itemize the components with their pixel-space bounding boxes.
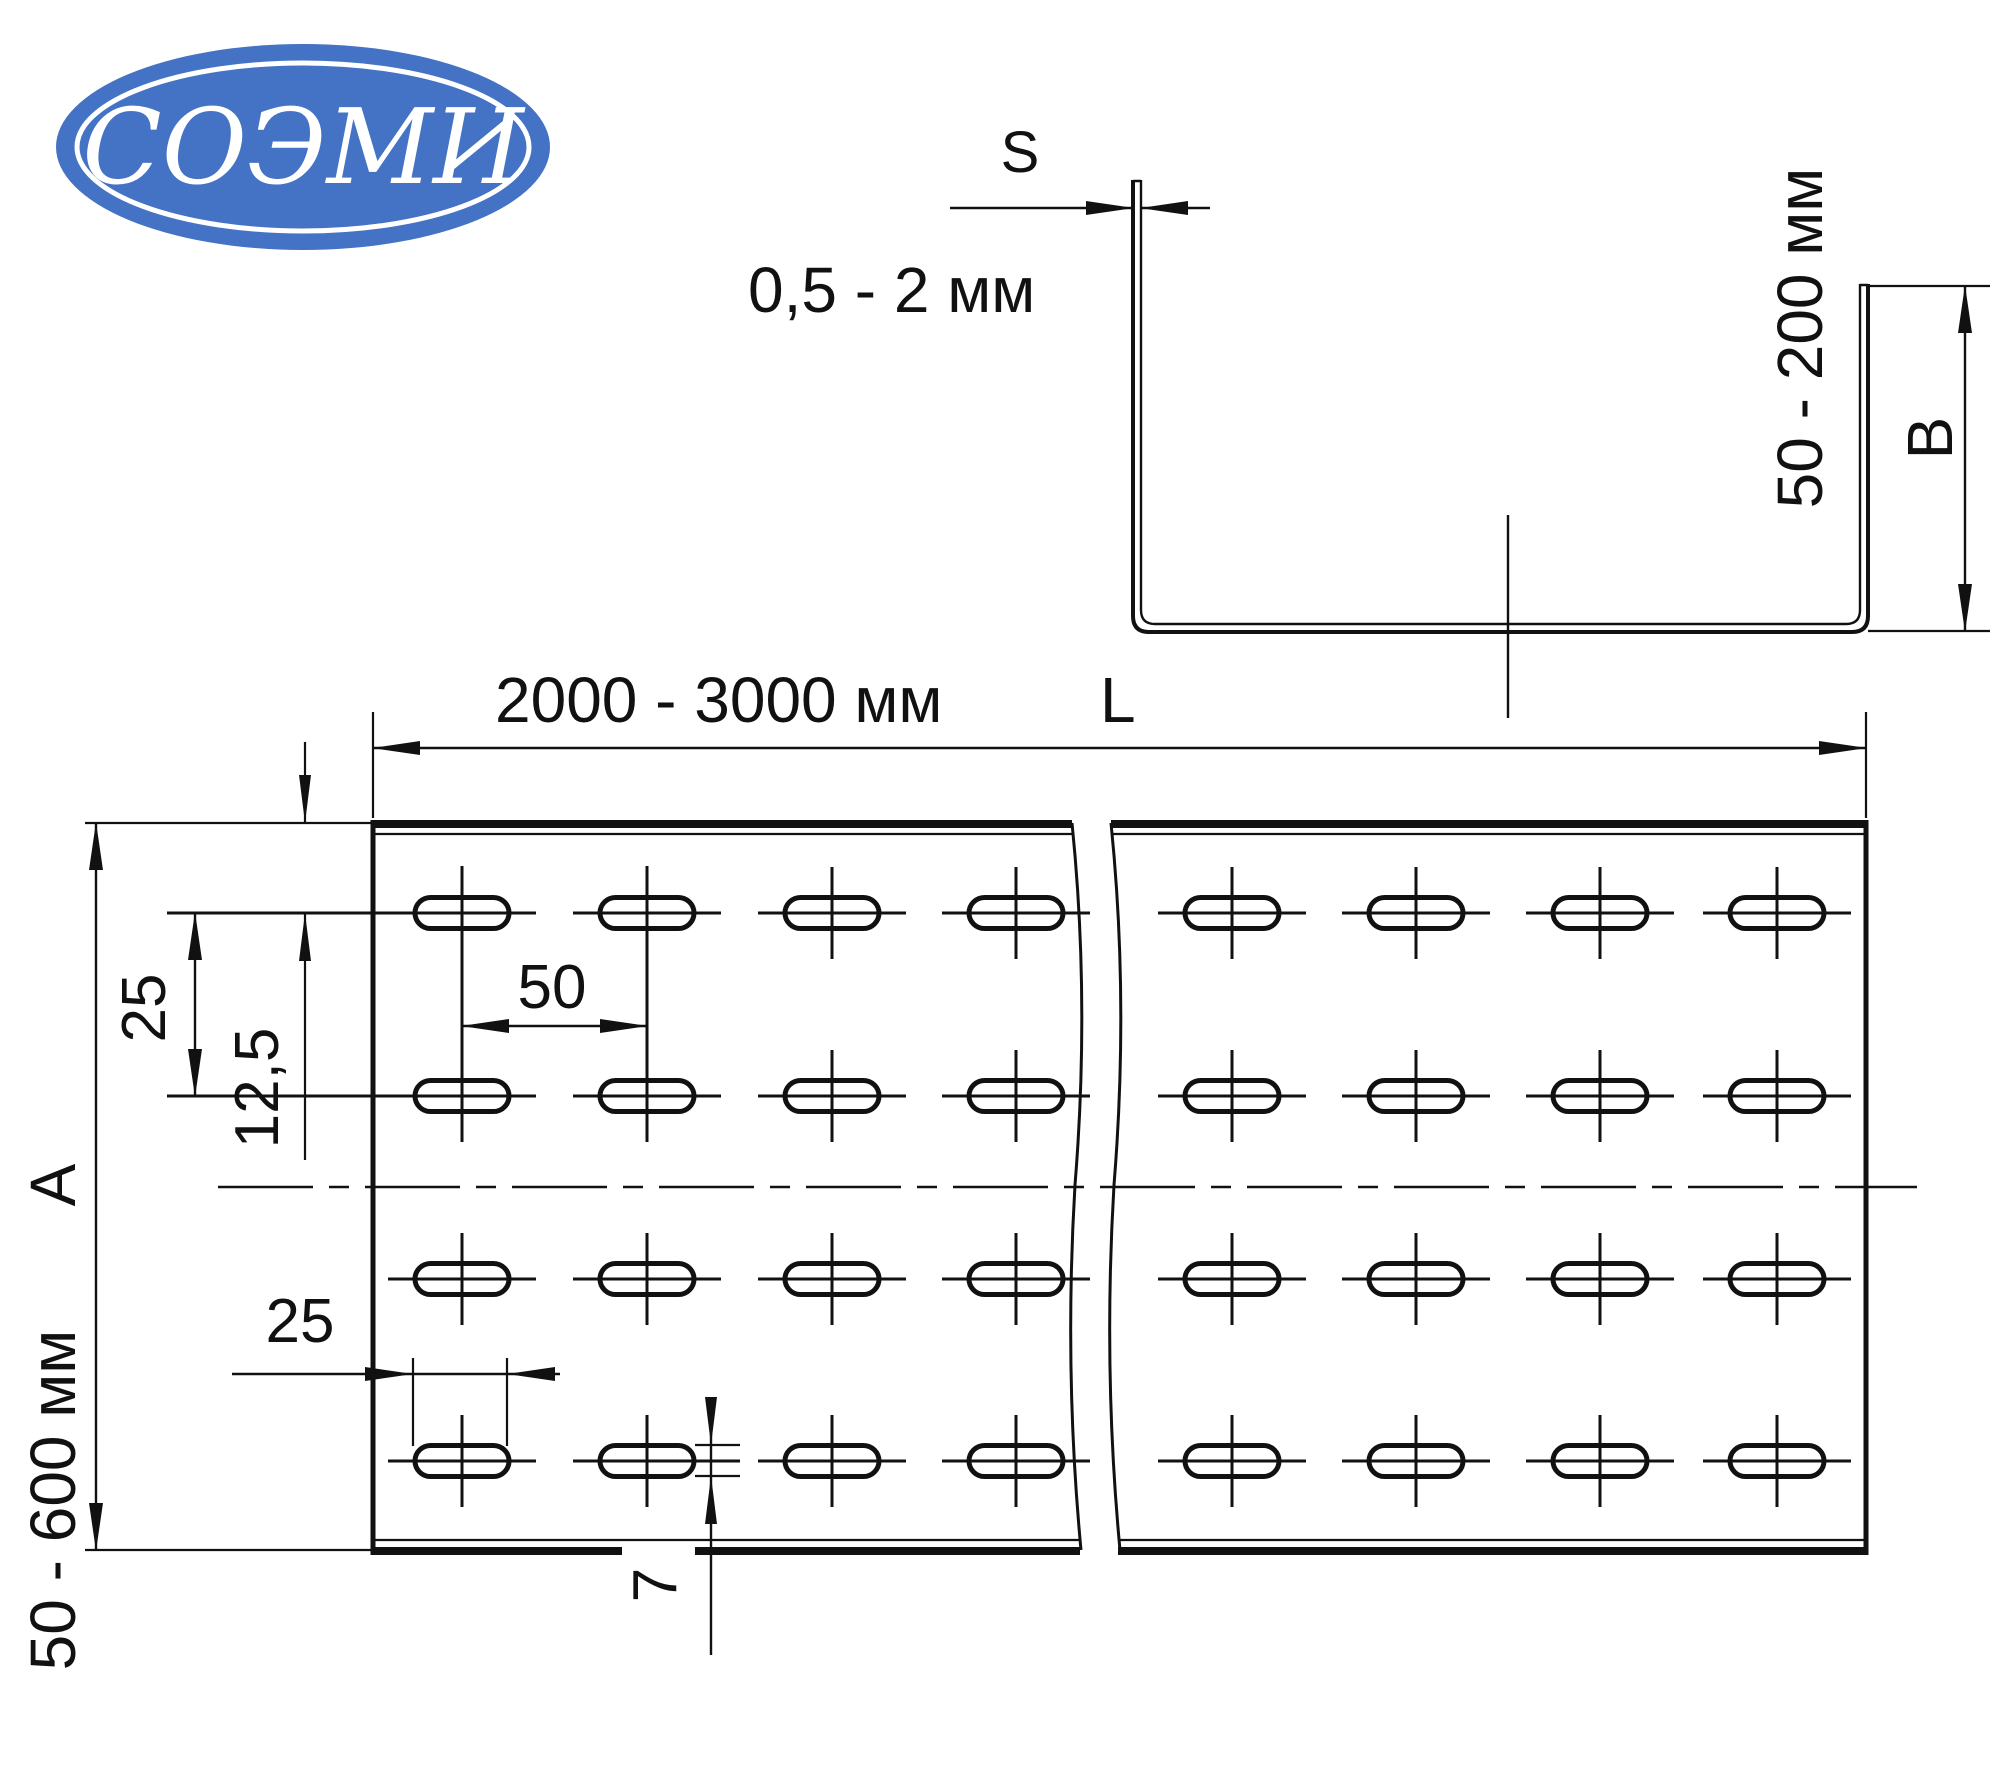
length-symbol-label: L [1100, 664, 1136, 736]
slot-length-extension-lines [413, 1358, 507, 1446]
dim-row-spacing: 25 [110, 913, 195, 1096]
slot-width-label: 7 [621, 1568, 690, 1602]
technical-drawing-page: СОЭМИ S 0,5 - 2 мм 50 - 200 мм B [0, 0, 2000, 1771]
height-range-label: 50 - 200 мм [1764, 168, 1836, 509]
company-logo: СОЭМИ [56, 44, 550, 250]
dim-length: 2000 - 3000 мм L [373, 664, 1866, 818]
slot-pitch-label: 50 [518, 953, 587, 1022]
height-symbol-label: B [1894, 417, 1966, 460]
logo-text: СОЭМИ [82, 86, 526, 208]
width-range-label: 50 - 600 мм [17, 1330, 89, 1671]
edge-offset-label: 12,5 [223, 1028, 292, 1149]
channel-inner-contour [1141, 180, 1860, 624]
dim-slot-width: 7 [621, 1397, 740, 1655]
thickness-range-label: 0,5 - 2 мм [748, 254, 1035, 326]
dim-height: 50 - 200 мм B [1764, 168, 1990, 631]
width-symbol-label: A [17, 1163, 89, 1206]
row-spacing-label: 25 [110, 974, 179, 1043]
channel-outer-contour [1133, 180, 1868, 632]
channel-wall-caps [1133, 181, 1868, 285]
plan-view: 2000 - 3000 мм L 50 - 600 мм A 25 12,5 5… [17, 664, 1917, 1670]
dim-slot-length: 25 [232, 1287, 560, 1446]
thickness-symbol-label: S [1001, 120, 1040, 185]
dim-slot-pitch: 50 [462, 953, 647, 1026]
length-range-label: 2000 - 3000 мм [495, 664, 942, 736]
slot-length-label: 25 [266, 1287, 335, 1356]
section-view: S 0,5 - 2 мм 50 - 200 мм B [748, 120, 1990, 718]
cable-tray-drawing: СОЭМИ S 0,5 - 2 мм 50 - 200 мм B [0, 0, 2000, 1771]
